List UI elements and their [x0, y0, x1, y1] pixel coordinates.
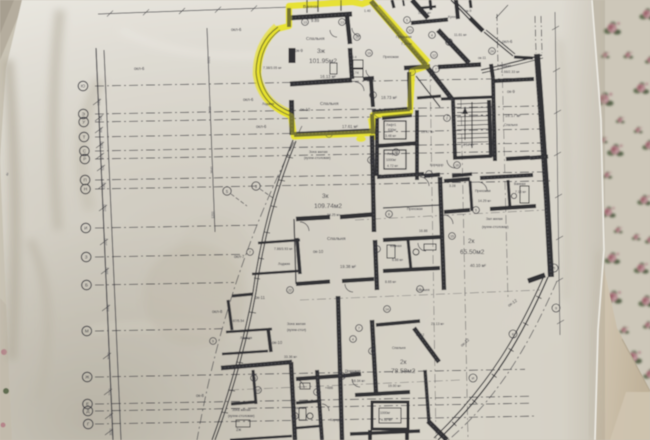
svg-text:33.36 м²: 33.36 м² — [284, 355, 298, 359]
svg-text:16: 16 — [252, 376, 256, 380]
svg-text:2ж: 2ж — [236, 427, 241, 432]
svg-text:ок-12: ок-12 — [416, 333, 424, 337]
svg-text:Спальня: Спальня — [504, 123, 518, 127]
svg-text:7: 7 — [372, 93, 374, 97]
svg-text:окл-8: окл-8 — [212, 309, 223, 314]
svg-text:с-з: с-з — [352, 55, 357, 59]
svg-text:9: 9 — [555, 307, 557, 311]
svg-text:109.74м2: 109.74м2 — [314, 203, 342, 210]
svg-text:окл-6: окл-6 — [256, 124, 267, 129]
svg-text:19.38 м²: 19.38 м² — [340, 264, 357, 269]
svg-text:101.95м2: 101.95м2 — [309, 58, 337, 65]
svg-text:Спальня: Спальня — [416, 288, 430, 292]
svg-text:5050: 5050 — [207, 56, 211, 63]
svg-text:окл-6: окл-6 — [502, 39, 513, 44]
svg-text:Прихожая: Прихожая — [396, 35, 412, 39]
svg-text:(кухни-столовая): (кухни-столовая) — [228, 414, 254, 418]
svg-text:Коридор: Коридор — [330, 418, 344, 422]
svg-text:10: 10 — [293, 414, 297, 418]
svg-text:Р: Р — [83, 157, 86, 162]
svg-text:окл-7: окл-7 — [234, 254, 245, 259]
svg-text:Лифт1: Лифт1 — [386, 123, 396, 127]
svg-text:7: 7 — [358, 326, 360, 330]
svg-text:15: 15 — [370, 349, 374, 353]
svg-text:Ванная: Ванная — [390, 244, 402, 248]
svg-text:2к: 2к — [400, 359, 407, 366]
svg-text:16: 16 — [256, 388, 260, 392]
svg-text:окл-6: окл-6 — [134, 66, 145, 71]
svg-text:Ю: Ю — [81, 84, 86, 89]
svg-text:24: 24 — [490, 49, 494, 53]
svg-text:Прихожая: Прихожая — [475, 189, 491, 193]
svg-text:Спальня: Спальня — [306, 36, 325, 41]
svg-text:16: 16 — [427, 172, 431, 176]
svg-text:4.66/2.33 м²: 4.66/2.33 м² — [501, 70, 520, 74]
svg-text:Лоджия: Лоджия — [262, 102, 274, 106]
svg-text:34.25 м²: 34.25 м² — [327, 213, 341, 217]
svg-text:9.89: 9.89 — [311, 18, 320, 23]
svg-text:ок-11: ок-11 — [255, 295, 266, 300]
svg-text:19.47 м²: 19.47 м² — [421, 130, 435, 134]
svg-text:(кухни-стол): (кухни-стол) — [287, 328, 306, 332]
svg-text:1200: 1200 — [211, 211, 215, 218]
svg-text:6: 6 — [316, 390, 318, 394]
svg-text:Лоджия: Лоджия — [278, 262, 290, 266]
svg-text:11.61 м²: 11.61 м² — [454, 33, 468, 37]
svg-text:16.88: 16.88 — [419, 229, 428, 233]
svg-text:Ж: Ж — [85, 375, 90, 380]
svg-text:10: 10 — [340, 374, 344, 378]
svg-text:3ж: 3ж — [317, 48, 326, 55]
svg-text:И: И — [472, 377, 475, 381]
svg-text:Зал жилая: Зал жилая — [486, 217, 503, 221]
svg-text:Лоджия: Лоджия — [499, 64, 511, 68]
svg-text:8.65 м²: 8.65 м² — [385, 280, 397, 284]
svg-text:630кг: 630кг — [388, 128, 397, 132]
svg-text:6.86 м²: 6.86 м² — [392, 258, 404, 262]
svg-text:Зона жилая: Зона жилая — [287, 322, 306, 326]
svg-text:3: 3 — [376, 247, 378, 251]
svg-text:5: 5 — [475, 208, 477, 212]
svg-text:4: 4 — [352, 337, 354, 341]
svg-text:Спальня: Спальня — [392, 346, 406, 350]
svg-text:16: 16 — [455, 163, 459, 167]
svg-text:Б: Б — [85, 283, 88, 288]
svg-text:14.94 м²: 14.94 м² — [461, 143, 475, 147]
svg-text:Лифт1: Лифт1 — [387, 152, 397, 156]
svg-text:1.87/5.54: 1.87/5.54 — [230, 319, 244, 323]
svg-text:16.34 м²: 16.34 м² — [352, 379, 366, 383]
svg-text:16: 16 — [447, 40, 451, 44]
svg-text:4.32 м²: 4.32 м² — [381, 418, 393, 422]
svg-text:4: 4 — [431, 33, 433, 37]
svg-text:Прихожая: Прихожая — [383, 55, 399, 59]
svg-text:+48В: +48В — [325, 386, 334, 390]
svg-text:ок-10: ок-10 — [300, 107, 311, 112]
svg-text:Коридор: Коридор — [430, 163, 444, 167]
svg-text:2.74: 2.74 — [352, 71, 359, 75]
svg-text:ок-9: ок-9 — [507, 89, 516, 94]
svg-text:(кухни-столовая): (кухни-столовая) — [482, 225, 508, 229]
svg-text:10: 10 — [369, 158, 373, 162]
svg-text:3.48 м²: 3.48 м² — [385, 134, 397, 138]
svg-text:8: 8 — [388, 212, 390, 216]
svg-text:7: 7 — [249, 250, 251, 254]
svg-text:ок-11: ок-11 — [478, 56, 486, 60]
svg-text:14: 14 — [385, 307, 389, 311]
svg-text:Ванная: Ванная — [294, 406, 306, 410]
svg-text:Ванная: Ванная — [303, 4, 319, 9]
svg-text:19: 19 — [367, 51, 371, 55]
svg-text:15: 15 — [450, 234, 454, 238]
svg-text:10: 10 — [408, 28, 412, 32]
svg-text:Прихожая: Прихожая — [345, 369, 361, 373]
svg-text:ок-9: ок-9 — [465, 9, 471, 13]
svg-text:78.58м2: 78.58м2 — [391, 368, 416, 375]
svg-text:Зона жилая: Зона жилая — [232, 408, 251, 412]
svg-text:ок-9: ок-9 — [295, 48, 304, 53]
svg-text:7.86/3.93 м²: 7.86/3.93 м² — [274, 247, 293, 251]
svg-text:3640: 3640 — [210, 166, 214, 173]
svg-text:22: 22 — [288, 288, 292, 292]
svg-text:ок-8: ок-8 — [196, 393, 205, 398]
svg-text:7.38/3.05 м²: 7.38/3.05 м² — [263, 66, 282, 70]
svg-text:9: 9 — [212, 339, 214, 343]
svg-text:2: 2 — [446, 116, 448, 120]
svg-text:1000кг: 1000кг — [386, 158, 397, 162]
svg-text:5: 5 — [406, 18, 408, 22]
svg-text:23.13 м²: 23.13 м² — [431, 322, 445, 326]
svg-text:окл-6: окл-6 — [243, 97, 254, 102]
svg-text:Лоджия: Лоджия — [240, 336, 252, 340]
svg-text:2к: 2к — [468, 238, 475, 245]
svg-text:18.17 м²: 18.17 м² — [505, 113, 522, 118]
svg-text:У: У — [82, 120, 85, 125]
svg-text:3к: 3к — [322, 193, 329, 200]
svg-text:18.28 м²: 18.28 м² — [418, 11, 432, 15]
svg-text:14.29 м²: 14.29 м² — [478, 199, 492, 203]
svg-text:З: З — [85, 255, 88, 260]
svg-text:Зона жилая: Зона жилая — [309, 150, 328, 154]
svg-text:7: 7 — [435, 67, 437, 71]
svg-text:13: 13 — [303, 20, 307, 24]
svg-text:16.13 м²: 16.13 м² — [320, 74, 337, 79]
svg-text:40.10 м²: 40.10 м² — [470, 263, 487, 268]
svg-text:12: 12 — [432, 53, 436, 57]
svg-text:19.00 м²: 19.00 м² — [388, 384, 402, 388]
svg-text:Н: Н — [84, 187, 87, 192]
svg-text:65.50м2: 65.50м2 — [460, 249, 485, 256]
svg-text:13: 13 — [340, 20, 344, 24]
svg-text:Кухня: Кухня — [448, 15, 457, 19]
svg-text:4.72 м²: 4.72 м² — [387, 164, 399, 168]
svg-text:7.37 м²: 7.37 м² — [401, 42, 413, 46]
svg-text:Спальня: Спальня — [327, 236, 346, 241]
svg-text:Т: Т — [83, 135, 86, 140]
svg-text:Прихожая: Прихожая — [407, 207, 423, 211]
svg-text:окл-6: окл-6 — [231, 27, 242, 32]
svg-text:(кухни-столовая): (кухни-столовая) — [304, 156, 330, 160]
svg-text:18.73 м²: 18.73 м² — [381, 95, 398, 100]
svg-text:М: М — [85, 329, 89, 334]
svg-text:ок-10: ок-10 — [313, 249, 324, 254]
svg-text:Ванная: Ванная — [514, 182, 526, 186]
svg-text:7.16 м²: 7.16 м² — [515, 190, 527, 194]
svg-text:И: И — [84, 226, 87, 231]
svg-text:П: П — [83, 178, 86, 183]
svg-text:ок-10: ок-10 — [272, 340, 283, 345]
svg-text:3.28: 3.28 — [449, 184, 456, 188]
svg-text:17.61 м²: 17.61 м² — [342, 124, 359, 129]
svg-text:1000кг: 1000кг — [380, 411, 391, 415]
svg-text:Спальня: Спальня — [320, 101, 339, 106]
svg-text:2410: 2410 — [208, 106, 212, 113]
svg-text:1.40: 1.40 — [364, 9, 371, 13]
